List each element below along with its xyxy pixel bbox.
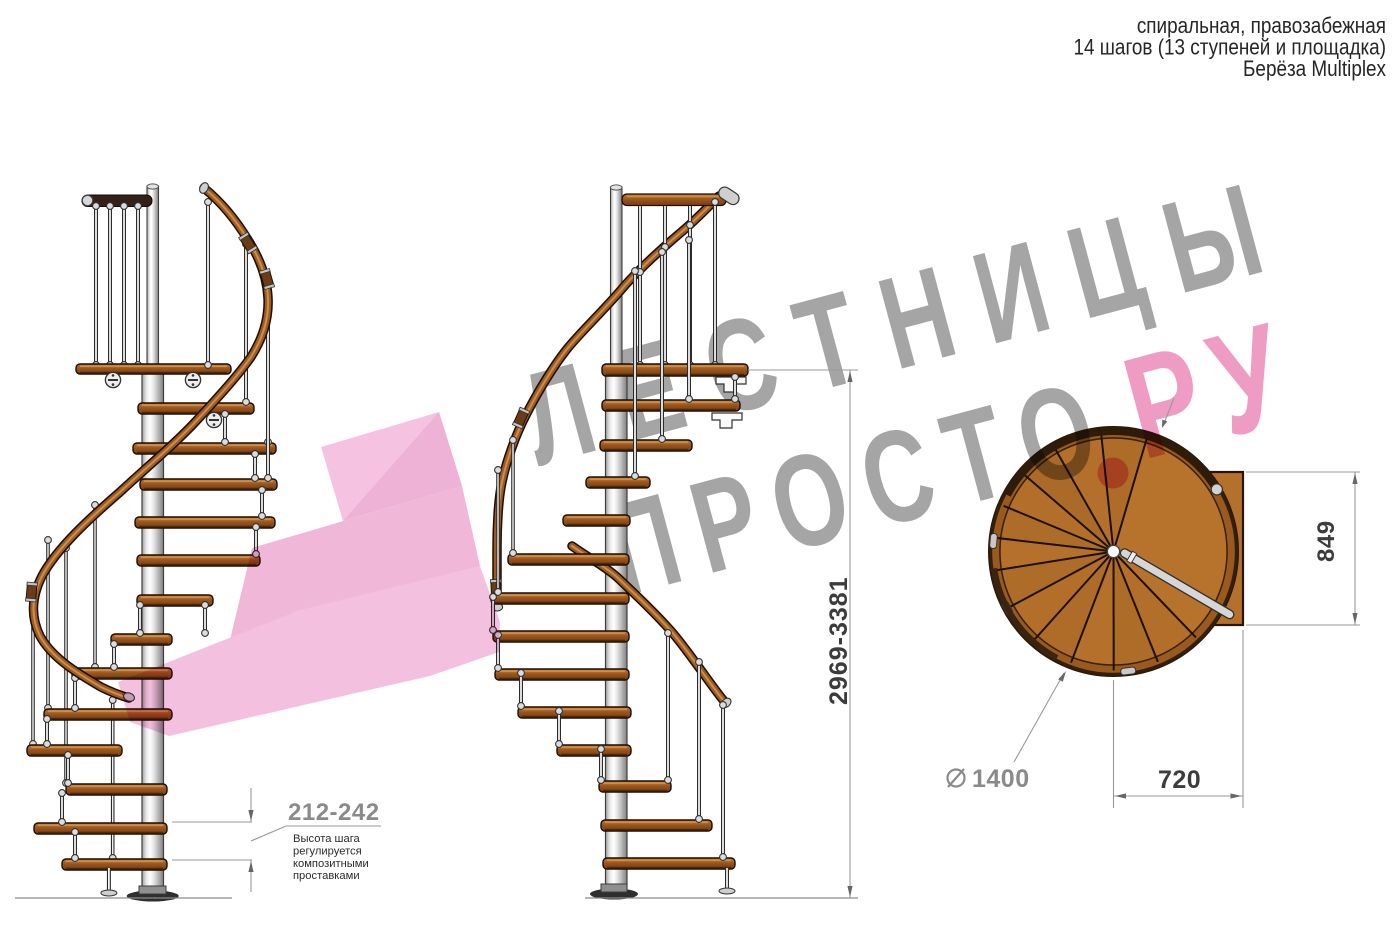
svg-text:Берёза Multiplex: Берёза Multiplex: [1243, 57, 1387, 82]
svg-text:212-242: 212-242: [288, 799, 380, 826]
svg-text:720: 720: [1158, 766, 1201, 794]
svg-text:Высота шагарегулируетсякомпози: Высота шагарегулируетсякомпозитнымипрост…: [293, 833, 369, 882]
svg-text:1400: 1400: [972, 765, 1030, 793]
svg-text:2969-3381: 2969-3381: [825, 576, 853, 705]
svg-text:849: 849: [1313, 520, 1340, 562]
